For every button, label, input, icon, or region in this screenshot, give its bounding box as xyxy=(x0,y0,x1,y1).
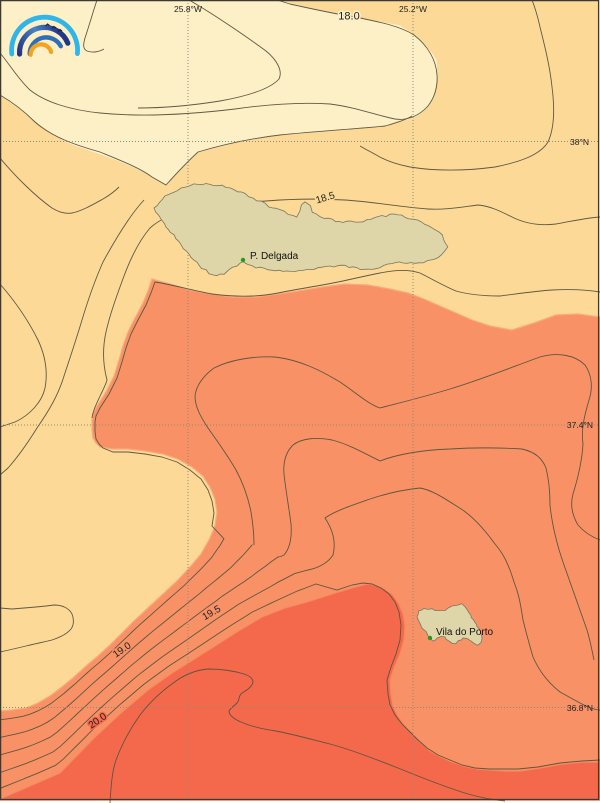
svg-text:37.4°N: 37.4°N xyxy=(567,420,593,430)
svg-text:18.0: 18.0 xyxy=(338,11,359,23)
svg-text:P. Delgada: P. Delgada xyxy=(250,251,299,262)
svg-text:25.8°W: 25.8°W xyxy=(174,4,202,14)
svg-text:36.8°N: 36.8°N xyxy=(567,703,593,713)
svg-text:25.2°W: 25.2°W xyxy=(399,4,427,14)
svg-text:38°N: 38°N xyxy=(570,137,589,147)
svg-text:Vila do Porto: Vila do Porto xyxy=(436,627,494,638)
